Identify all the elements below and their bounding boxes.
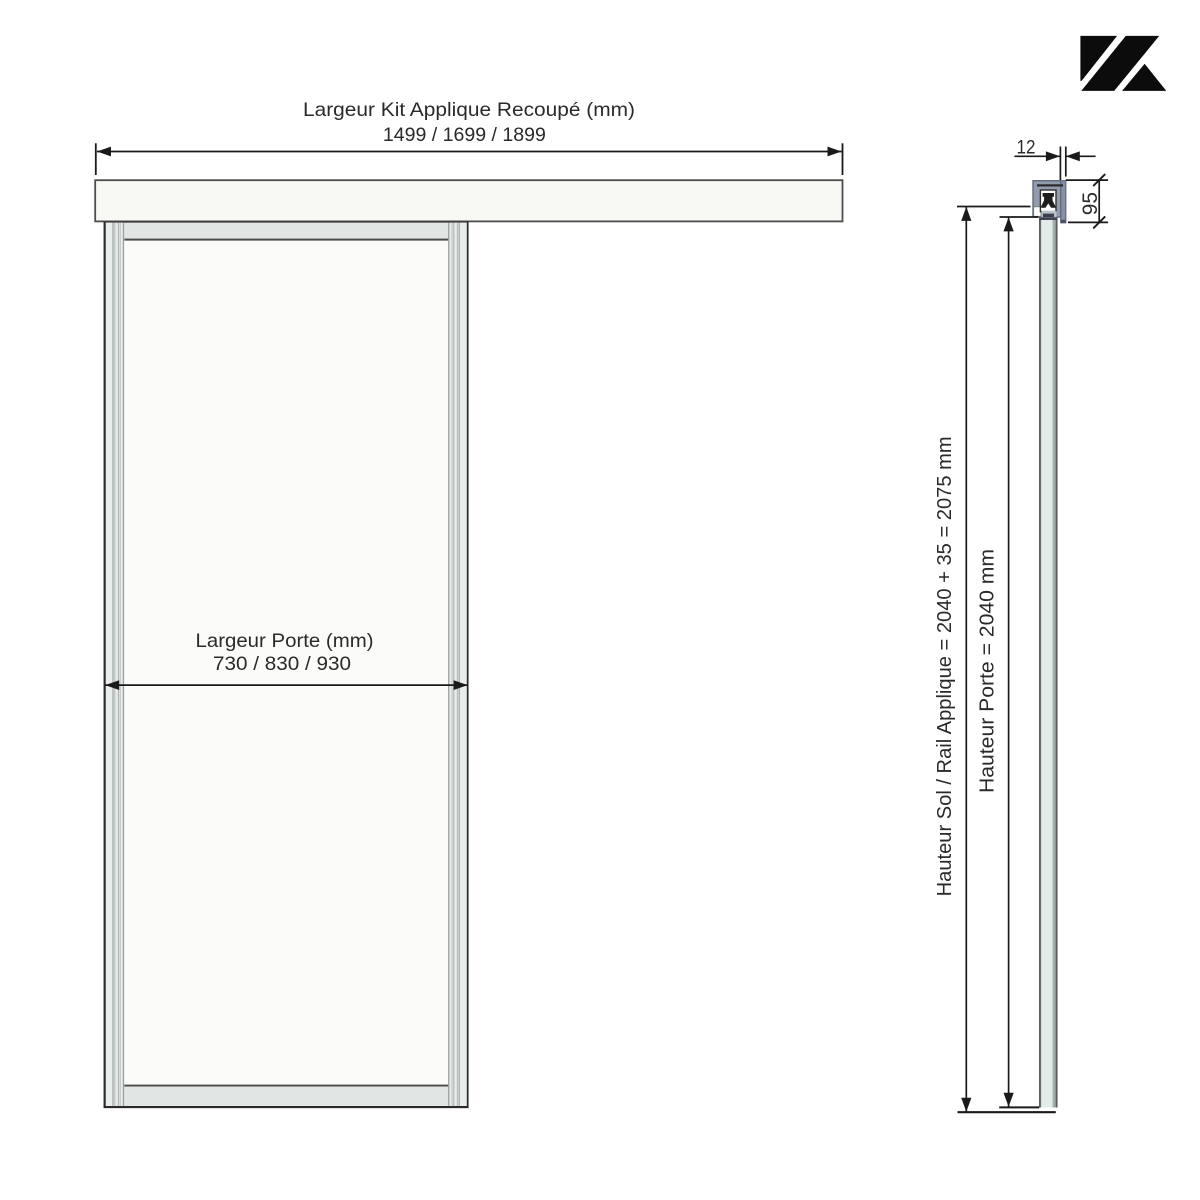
svg-text:95: 95 bbox=[1079, 192, 1102, 215]
svg-text:730 / 830 / 930: 730 / 830 / 930 bbox=[213, 653, 351, 675]
svg-text:Largeur Kit Applique Recoupé (: Largeur Kit Applique Recoupé (mm) bbox=[303, 99, 635, 121]
svg-text:Hauteur Sol / Rail Applique =: Hauteur Sol / Rail Applique = 2040 + 35 … bbox=[934, 436, 956, 896]
svg-text:12: 12 bbox=[1017, 136, 1036, 158]
svg-text:Hauteur Porte = 2040 mm: Hauteur Porte = 2040 mm bbox=[976, 549, 998, 793]
svg-text:1499 / 1699 / 1899: 1499 / 1699 / 1899 bbox=[383, 124, 546, 146]
svg-text:Largeur Porte (mm): Largeur Porte (mm) bbox=[196, 630, 374, 652]
